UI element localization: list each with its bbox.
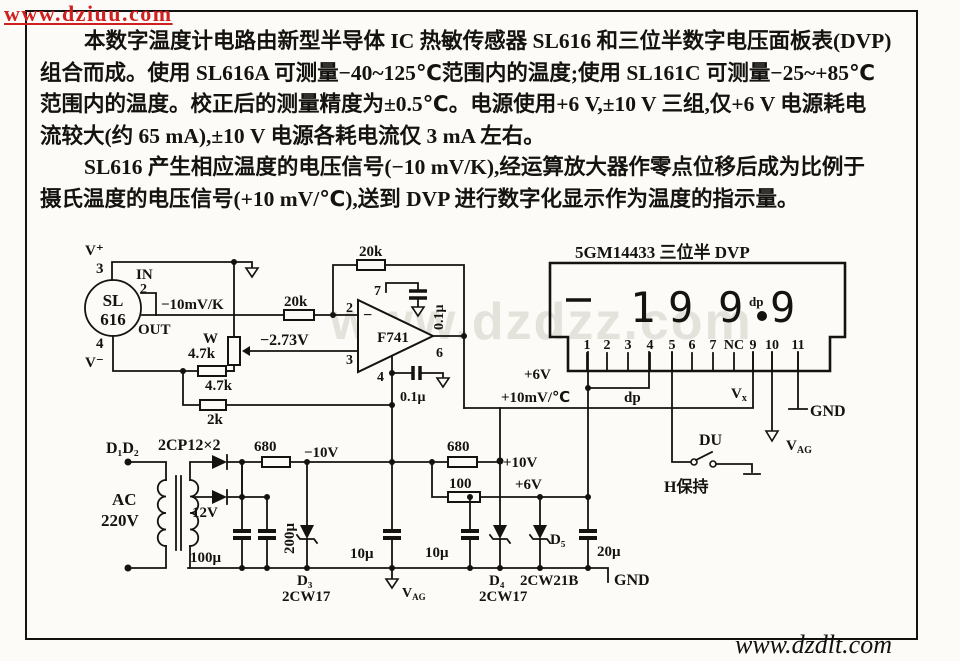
opamp-pin2-label: 2 <box>346 301 353 316</box>
sensor-pin4-label: 4 <box>96 336 104 352</box>
resistor-680-neg-label: 680 <box>254 439 277 455</box>
capacitor-200u <box>258 536 276 540</box>
transformer-core <box>176 476 181 550</box>
junction-dot <box>467 565 473 571</box>
offset-divider-network: W 4.7k −2.73V 4.7k 2k 20k <box>113 262 395 428</box>
opamp-pin6-label: 6 <box>436 346 443 361</box>
dvp-pin-label: 3 <box>625 338 632 353</box>
vx-label: Vx <box>731 386 747 404</box>
dvp-pin-label: 5 <box>669 338 676 353</box>
circuit-schematic: SL 616 V⁺ 3 IN 2 OUT 4 V⁻ −10mV/K W 4.7k… <box>25 218 920 640</box>
capacitor-200u-label: 200μ <box>282 523 298 555</box>
diode-d1 <box>212 455 227 469</box>
zener-d3-label: D₃ <box>297 573 313 589</box>
resistor-20k-feedback <box>357 260 385 270</box>
zener-d5-label: D₅ <box>550 532 566 548</box>
dvp-pin-label: NC <box>724 338 744 353</box>
rectifier-diodes-label: D₁D₂ <box>106 440 139 457</box>
description-line: 流较大(约 65 mA),±10 V 电源各耗电流仅 3 mA 左右。 <box>40 121 908 153</box>
scanned-book-page: www.dziuu.com www.dzdzz.com 本数字温度计电路由新型半… <box>0 0 960 661</box>
potentiometer-4k7 <box>228 337 240 365</box>
dvp-pin-label: 1 <box>584 338 591 353</box>
rail-6v-label: +6V <box>515 477 542 493</box>
ac-voltage-label: 220V <box>101 511 140 530</box>
resistor-4k7-label: 4.7k <box>205 378 233 394</box>
dvp-supply-label: +6V <box>524 367 551 383</box>
opamp-inverting-sign: − <box>363 307 372 324</box>
resistor-2k <box>200 400 226 410</box>
opamp-pin7-label: 7 <box>374 284 381 299</box>
capacitor-100u <box>233 536 251 540</box>
wire-pin7-decoupling <box>386 283 418 307</box>
zener-d3 <box>300 525 314 539</box>
junction-dot <box>497 565 503 571</box>
rectifier-type-label: 2CP12×2 <box>158 437 220 454</box>
dvp-pin-label: 9 <box>750 338 757 353</box>
display-digit: 9 <box>668 283 693 332</box>
analog-ground-arrow-icon <box>766 431 778 441</box>
gnd-right-label: GND <box>810 403 846 420</box>
capacitor-10u-6v-label: 10μ <box>425 545 449 561</box>
analog-ground-arrow-icon <box>437 378 449 387</box>
sensor-in-label: IN <box>136 267 153 283</box>
zener-d4 <box>493 525 507 539</box>
decimal-point-dot <box>757 311 767 321</box>
resistor-680-neg <box>262 457 290 467</box>
sensor-name-2: 616 <box>100 310 126 329</box>
sensor-pin2-label: 2 <box>140 282 147 297</box>
description-line: 本数字温度计电路由新型半导体 IC 热敏传感器 SL616 和三位半数字电压面板… <box>40 26 908 58</box>
wire-du <box>672 352 691 462</box>
capacitor-100u-label: 100μ <box>190 550 222 566</box>
dvp-pin-label: 7 <box>710 338 717 353</box>
sensor-out-label: OUT <box>138 322 171 338</box>
pot-name-label: W <box>203 331 218 347</box>
junction-dot <box>304 459 310 465</box>
display-digit: 1 <box>630 283 655 332</box>
pot-wiper-arrow-icon <box>242 346 250 356</box>
dp-wire-label: dp <box>624 390 641 406</box>
wire-d2 <box>227 462 267 504</box>
capacitor-10u-6v <box>461 536 479 540</box>
description-line: 组合而成。使用 SL616A 可测量−40~125℃范围内的温度;使用 SL16… <box>40 58 908 90</box>
wire-pin4-decoupling <box>392 373 443 378</box>
resistor-20k-input <box>284 310 314 320</box>
switch-lever <box>696 452 712 460</box>
dvp-outline <box>550 263 845 371</box>
zener-d5 <box>533 525 547 539</box>
sensor-vminus-label: V⁻ <box>85 355 104 371</box>
sensor-vplus-label: V⁺ <box>85 243 104 259</box>
capacitor-10u-6v <box>461 529 479 533</box>
dvp-pin-label: 2 <box>604 338 611 353</box>
decimal-point-label: dp <box>749 294 763 309</box>
opamp-pin4-label: 4 <box>377 370 384 385</box>
watermark-top-left: www.dziuu.com <box>4 1 173 27</box>
junction-dot <box>467 494 473 500</box>
circuit-description: 本数字温度计电路由新型半导体 IC 热敏传感器 SL616 和三位半数字电压面板… <box>40 26 908 215</box>
watermark-bottom-right: www.dzdlt.com <box>735 630 892 660</box>
capacitor-pin4 <box>413 366 420 380</box>
junction-dot <box>585 565 591 571</box>
zener-d5-type-label: 2CW21B <box>520 573 578 589</box>
vag-label: VAG <box>786 438 812 456</box>
capacitor-10u-neg <box>383 529 401 533</box>
wire <box>112 262 252 280</box>
signal-and-supply-wiring: +10mV/℃ +6V dp Vx VAG GND DU H保持 <box>464 352 846 497</box>
sensor-sensitivity-label: −10mV/K <box>161 297 224 313</box>
vag-bottom-label: VAG <box>402 586 426 602</box>
diode-d2 <box>212 490 227 504</box>
neg-rail-label: −10V <box>304 445 339 461</box>
supply-arrow-icon <box>246 268 258 277</box>
analog-ground-arrow-icon <box>386 579 398 588</box>
analog-ground-arrow-icon <box>412 307 424 316</box>
junction-dot <box>264 565 270 571</box>
dvp-pin-label: 4 <box>647 338 654 353</box>
resistor-680-pos-label: 680 <box>447 439 470 455</box>
transformer-primary-coil <box>158 480 166 546</box>
hold-label: H保持 <box>664 477 708 496</box>
description-line: SL616 产生相应温度的电压信号(−10 mV/K),经运算放大器作零点位移后… <box>40 152 908 184</box>
sensor-pin3-label: 3 <box>96 261 104 277</box>
zener-d4-label: D₄ <box>489 573 505 589</box>
resistor-20k-feedback-label: 20k <box>359 244 383 260</box>
wire-switch-ground <box>716 464 760 474</box>
zener-d4-type-label: 2CW17 <box>479 589 528 605</box>
capacitor-pin4-label: 0.1μ <box>400 390 426 405</box>
secondary-voltage-label: 12V <box>192 505 218 521</box>
capacitor-pin7 <box>409 291 427 298</box>
capacitor-pin7-label: 0.1μ <box>432 305 447 331</box>
opamp-name-label: F741 <box>377 330 409 346</box>
dvp-pin-numbers: 1 2 3 4 5 6 7 NC 9 10 11 <box>584 338 805 353</box>
capacitor-200u <box>258 529 276 533</box>
junction-dot <box>304 565 310 571</box>
resistor-100-label: 100 <box>449 476 472 492</box>
junction-dot <box>585 494 591 500</box>
junction-dot <box>537 565 543 571</box>
resistor-100 <box>448 492 480 502</box>
resistor-20k-input-label: 20k <box>284 294 308 310</box>
power-supply-section: D₁D₂ 2CP12×2 680 −10V AC 220V 12V 680 <box>101 408 650 605</box>
display-digit: 9 <box>718 283 743 332</box>
offset-voltage-label: −2.73V <box>260 332 309 349</box>
junction-dot <box>239 565 245 571</box>
resistor-680-pos <box>448 457 477 467</box>
gnd-bottom-label: GND <box>614 572 650 589</box>
resistor-4k7 <box>198 366 226 376</box>
capacitor-10u-neg <box>383 536 401 540</box>
junction-dot <box>537 494 543 500</box>
pot-value-label: 4.7k <box>188 346 216 362</box>
dvp-panel-meter: 5GM14433 三位半 DVP 1 9 9 9 dp 1 2 3 4 5 6 … <box>550 242 845 371</box>
dvp-title: 5GM14433 三位半 DVP <box>575 242 750 262</box>
description-line: 范围内的温度。校正后的测量精度为±0.5℃。电源使用+6 V,±10 V 三组,… <box>40 89 908 121</box>
opamp-pin3-label: 3 <box>346 353 353 368</box>
ac-label: AC <box>112 490 137 509</box>
junction-dot <box>264 494 270 500</box>
dvp-pin-label: 11 <box>791 338 804 353</box>
capacitor-20u-label: 20μ <box>597 544 621 560</box>
description-line: 摄氏温度的电压信号(+10 mV/℃),送到 DVP 进行数字化显示作为温度的指… <box>40 184 908 216</box>
capacitor-100u <box>233 529 251 533</box>
zener-d3-type-label: 2CW17 <box>282 589 331 605</box>
display-digit: 9 <box>770 283 795 332</box>
dvp-pin-label: 10 <box>765 338 779 353</box>
sensor-name: SL <box>103 291 124 310</box>
du-label: DU <box>699 432 723 449</box>
capacitor-10u-neg-label: 10μ <box>350 546 374 562</box>
resistor-2k-label: 2k <box>207 412 224 428</box>
dvp-pin-label: 6 <box>689 338 696 353</box>
pos-rail-label: +10V <box>503 455 538 471</box>
opamp-f741: 20k − F741 2 3 7 4 6 0.1μ 0.1μ <box>330 244 467 462</box>
dvp-pin-stubs <box>587 353 798 371</box>
capacitor-20u <box>579 536 597 540</box>
signal-label: +10mV/℃ <box>501 390 570 406</box>
capacitor-20u <box>579 529 597 533</box>
